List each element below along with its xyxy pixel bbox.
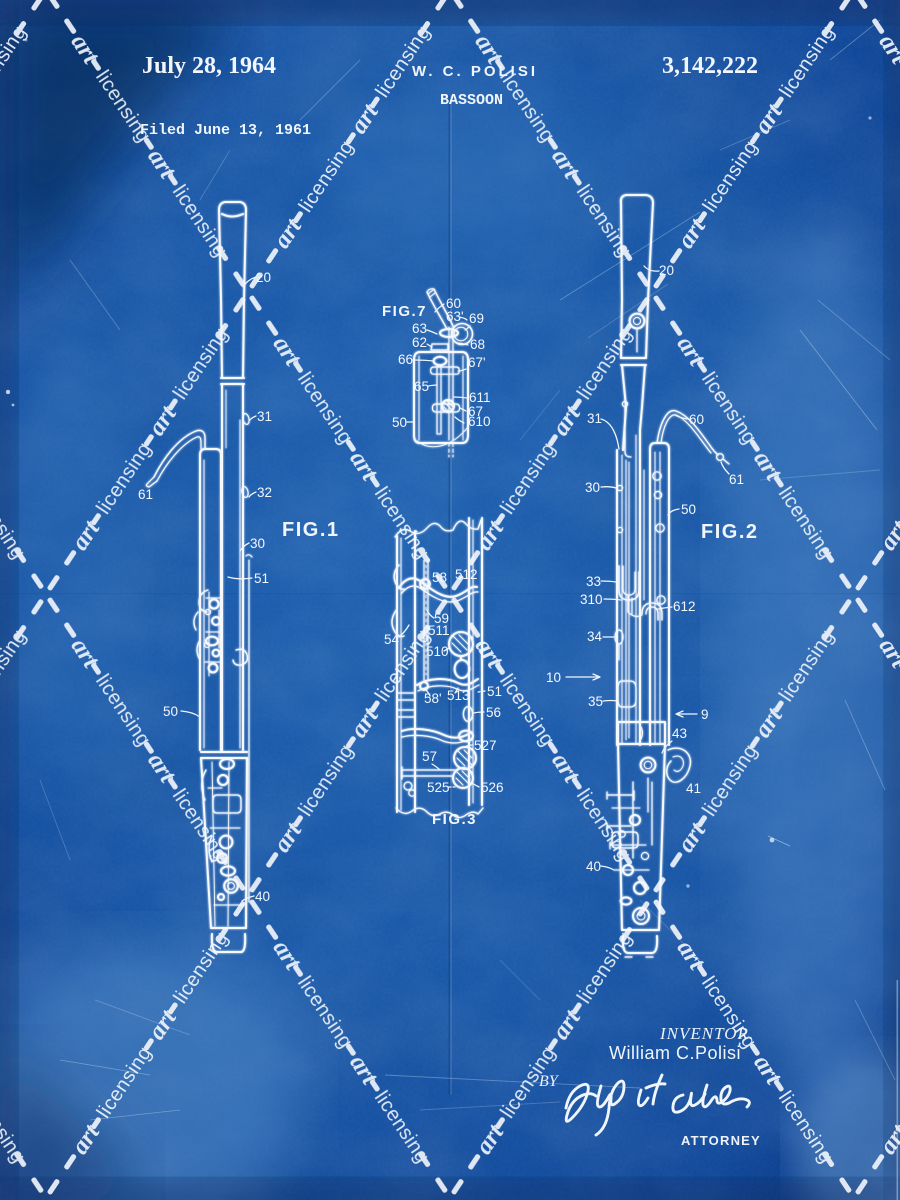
svg-text:65: 65 bbox=[414, 379, 429, 394]
svg-text:Filed June 13, 1961: Filed June 13, 1961 bbox=[140, 122, 311, 139]
svg-text:31: 31 bbox=[257, 409, 272, 424]
svg-text:50: 50 bbox=[392, 415, 407, 430]
svg-text:66: 66 bbox=[398, 352, 413, 367]
svg-text:33: 33 bbox=[586, 574, 601, 589]
svg-text:61: 61 bbox=[729, 472, 744, 487]
svg-text:41: 41 bbox=[686, 781, 701, 796]
svg-text:50: 50 bbox=[163, 704, 178, 719]
svg-text:40: 40 bbox=[586, 859, 601, 874]
svg-text:511: 511 bbox=[428, 623, 450, 638]
svg-text:31: 31 bbox=[587, 411, 602, 426]
svg-text:56: 56 bbox=[486, 705, 501, 720]
svg-text:510: 510 bbox=[426, 644, 449, 659]
svg-text:68: 68 bbox=[470, 337, 485, 352]
svg-text:50: 50 bbox=[681, 502, 696, 517]
svg-text:3,142,222: 3,142,222 bbox=[662, 53, 758, 79]
svg-text:512: 512 bbox=[455, 567, 478, 582]
svg-text:51: 51 bbox=[487, 684, 502, 699]
svg-text:INVENTOR.: INVENTOR. bbox=[659, 1024, 754, 1043]
svg-text:60: 60 bbox=[689, 412, 704, 427]
svg-text:30: 30 bbox=[250, 536, 265, 551]
svg-text:35: 35 bbox=[588, 694, 603, 709]
svg-text:63': 63' bbox=[446, 309, 464, 324]
svg-text:10: 10 bbox=[546, 670, 561, 685]
svg-text:July 28, 1964: July 28, 1964 bbox=[142, 53, 276, 79]
svg-text:43: 43 bbox=[672, 726, 687, 741]
svg-text:W. C. POLISI: W. C. POLISI bbox=[412, 63, 538, 80]
svg-text:612: 612 bbox=[673, 599, 696, 614]
svg-text:57: 57 bbox=[422, 749, 437, 764]
svg-text:63: 63 bbox=[412, 321, 427, 336]
svg-text:20: 20 bbox=[659, 263, 674, 278]
svg-text:ATTORNEY: ATTORNEY bbox=[681, 1133, 761, 1148]
svg-text:513: 513 bbox=[447, 688, 470, 703]
svg-text:34: 34 bbox=[587, 629, 603, 644]
svg-text:310: 310 bbox=[580, 592, 603, 607]
svg-text:69: 69 bbox=[469, 311, 484, 326]
svg-text:30: 30 bbox=[585, 480, 600, 495]
svg-text:62: 62 bbox=[412, 335, 427, 350]
svg-text:FIG.7: FIG.7 bbox=[382, 303, 427, 320]
svg-text:9: 9 bbox=[701, 707, 709, 722]
svg-text:526: 526 bbox=[481, 780, 504, 795]
svg-text:611: 611 bbox=[469, 390, 491, 405]
svg-text:BASSOON: BASSOON bbox=[440, 92, 503, 109]
svg-text:FIG.1: FIG.1 bbox=[282, 519, 340, 541]
svg-text:40: 40 bbox=[255, 889, 270, 904]
svg-text:FIG.3: FIG.3 bbox=[432, 811, 477, 828]
svg-text:67': 67' bbox=[468, 355, 486, 370]
svg-text:610: 610 bbox=[468, 414, 491, 429]
svg-text:FIG.2: FIG.2 bbox=[701, 521, 759, 543]
svg-text:BY: BY bbox=[539, 1073, 560, 1090]
svg-text:58: 58 bbox=[432, 570, 447, 585]
svg-text:58': 58' bbox=[424, 691, 442, 706]
svg-text:51: 51 bbox=[254, 571, 269, 586]
svg-text:61: 61 bbox=[138, 487, 153, 502]
svg-text:527: 527 bbox=[474, 738, 497, 753]
svg-text:William C.Polisi: William C.Polisi bbox=[609, 1043, 741, 1063]
svg-text:20: 20 bbox=[256, 270, 271, 285]
svg-text:525: 525 bbox=[427, 780, 450, 795]
svg-text:32: 32 bbox=[257, 485, 272, 500]
svg-text:54: 54 bbox=[384, 632, 400, 647]
